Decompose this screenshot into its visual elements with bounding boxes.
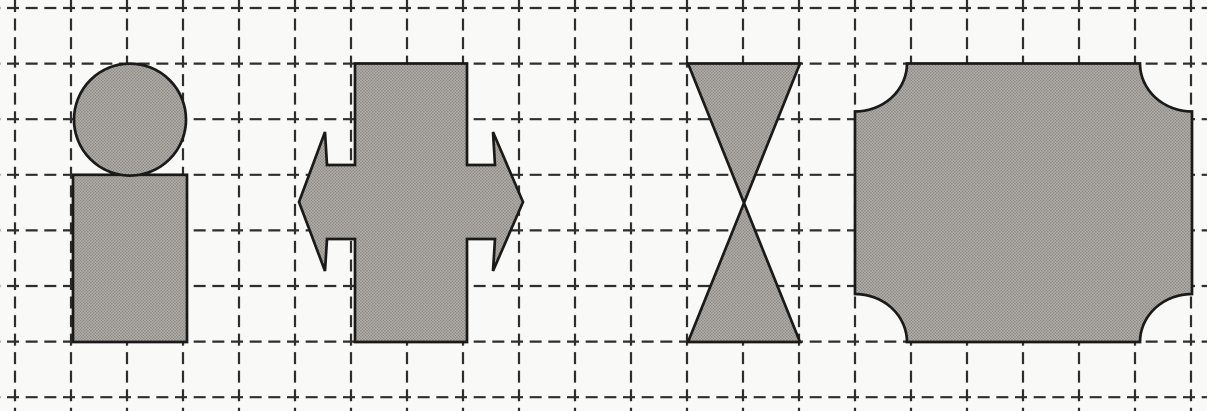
worksheet-figure [0, 0, 1207, 411]
grid-shapes-canvas [0, 0, 1207, 411]
concave-corner-rectangle-shape [855, 64, 1192, 343]
circle-on-rectangle-shape [73, 64, 187, 342]
concave-corner-rectangle-shape-path [855, 64, 1192, 343]
circle-on-rectangle-shape-rect [73, 175, 187, 342]
circle-on-rectangle-shape-circle [74, 64, 186, 176]
